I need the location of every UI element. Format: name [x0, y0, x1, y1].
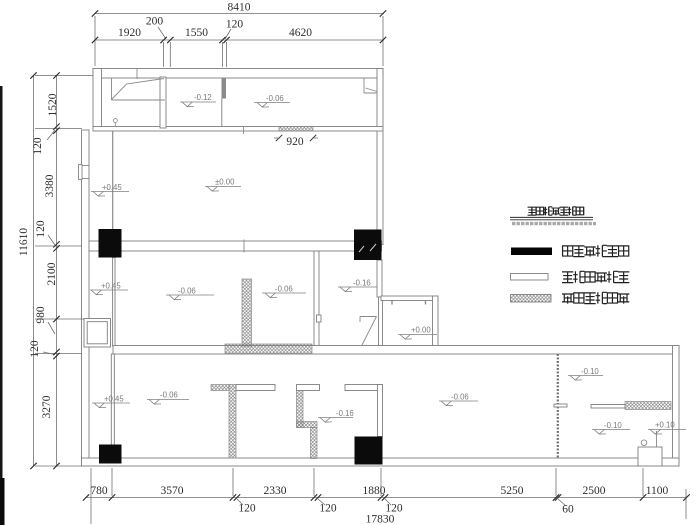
svg-text:60: 60	[562, 504, 574, 516]
svg-text:5250: 5250	[501, 485, 524, 497]
svg-text:-0.10: -0.10	[604, 421, 622, 430]
svg-text:3270: 3270	[41, 395, 53, 418]
svg-text:1550: 1550	[185, 27, 208, 39]
svg-text:2100: 2100	[46, 262, 58, 285]
svg-text:+0.45: +0.45	[104, 395, 124, 404]
svg-text:-0.16: -0.16	[336, 409, 354, 418]
svg-text:±0.00: ±0.00	[215, 178, 235, 187]
svg-text:-0.06: -0.06	[266, 94, 284, 103]
svg-text:2330: 2330	[264, 485, 287, 497]
svg-text:-0.06: -0.06	[451, 393, 469, 402]
svg-text:3380: 3380	[44, 174, 56, 197]
svg-text:+0.10: +0.10	[655, 421, 675, 430]
svg-text:920: 920	[286, 136, 304, 148]
svg-text:120: 120	[238, 503, 256, 515]
svg-text:-0.06: -0.06	[178, 287, 196, 296]
svg-text:120: 120	[29, 340, 41, 358]
svg-text:-0.16: -0.16	[353, 279, 371, 288]
svg-text:8410: 8410	[228, 2, 251, 14]
svg-text:+0.45: +0.45	[101, 282, 121, 291]
svg-text:-0.12: -0.12	[194, 93, 212, 102]
svg-text:11610: 11610	[18, 228, 30, 257]
svg-text:780: 780	[90, 485, 108, 497]
svg-text:-0.06: -0.06	[275, 285, 293, 294]
svg-text:-0.06: -0.06	[160, 391, 178, 400]
svg-text:17830: 17830	[366, 514, 395, 525]
svg-text:200: 200	[146, 16, 164, 28]
svg-text:4620: 4620	[289, 27, 312, 39]
svg-text:+0.00: +0.00	[411, 326, 431, 335]
svg-text:1880: 1880	[363, 485, 386, 497]
svg-text:120: 120	[319, 503, 337, 515]
svg-text:3570: 3570	[161, 485, 184, 497]
svg-text:+0.45: +0.45	[102, 183, 122, 192]
svg-text:2500: 2500	[583, 485, 606, 497]
svg-text:120: 120	[226, 19, 244, 31]
svg-text:980: 980	[35, 306, 47, 324]
svg-text:1920: 1920	[118, 27, 141, 39]
svg-text:120: 120	[32, 137, 44, 155]
svg-text:1520: 1520	[47, 93, 59, 116]
svg-text:-0.10: -0.10	[581, 367, 599, 376]
svg-text:1100: 1100	[646, 485, 669, 497]
svg-text:120: 120	[35, 220, 47, 238]
